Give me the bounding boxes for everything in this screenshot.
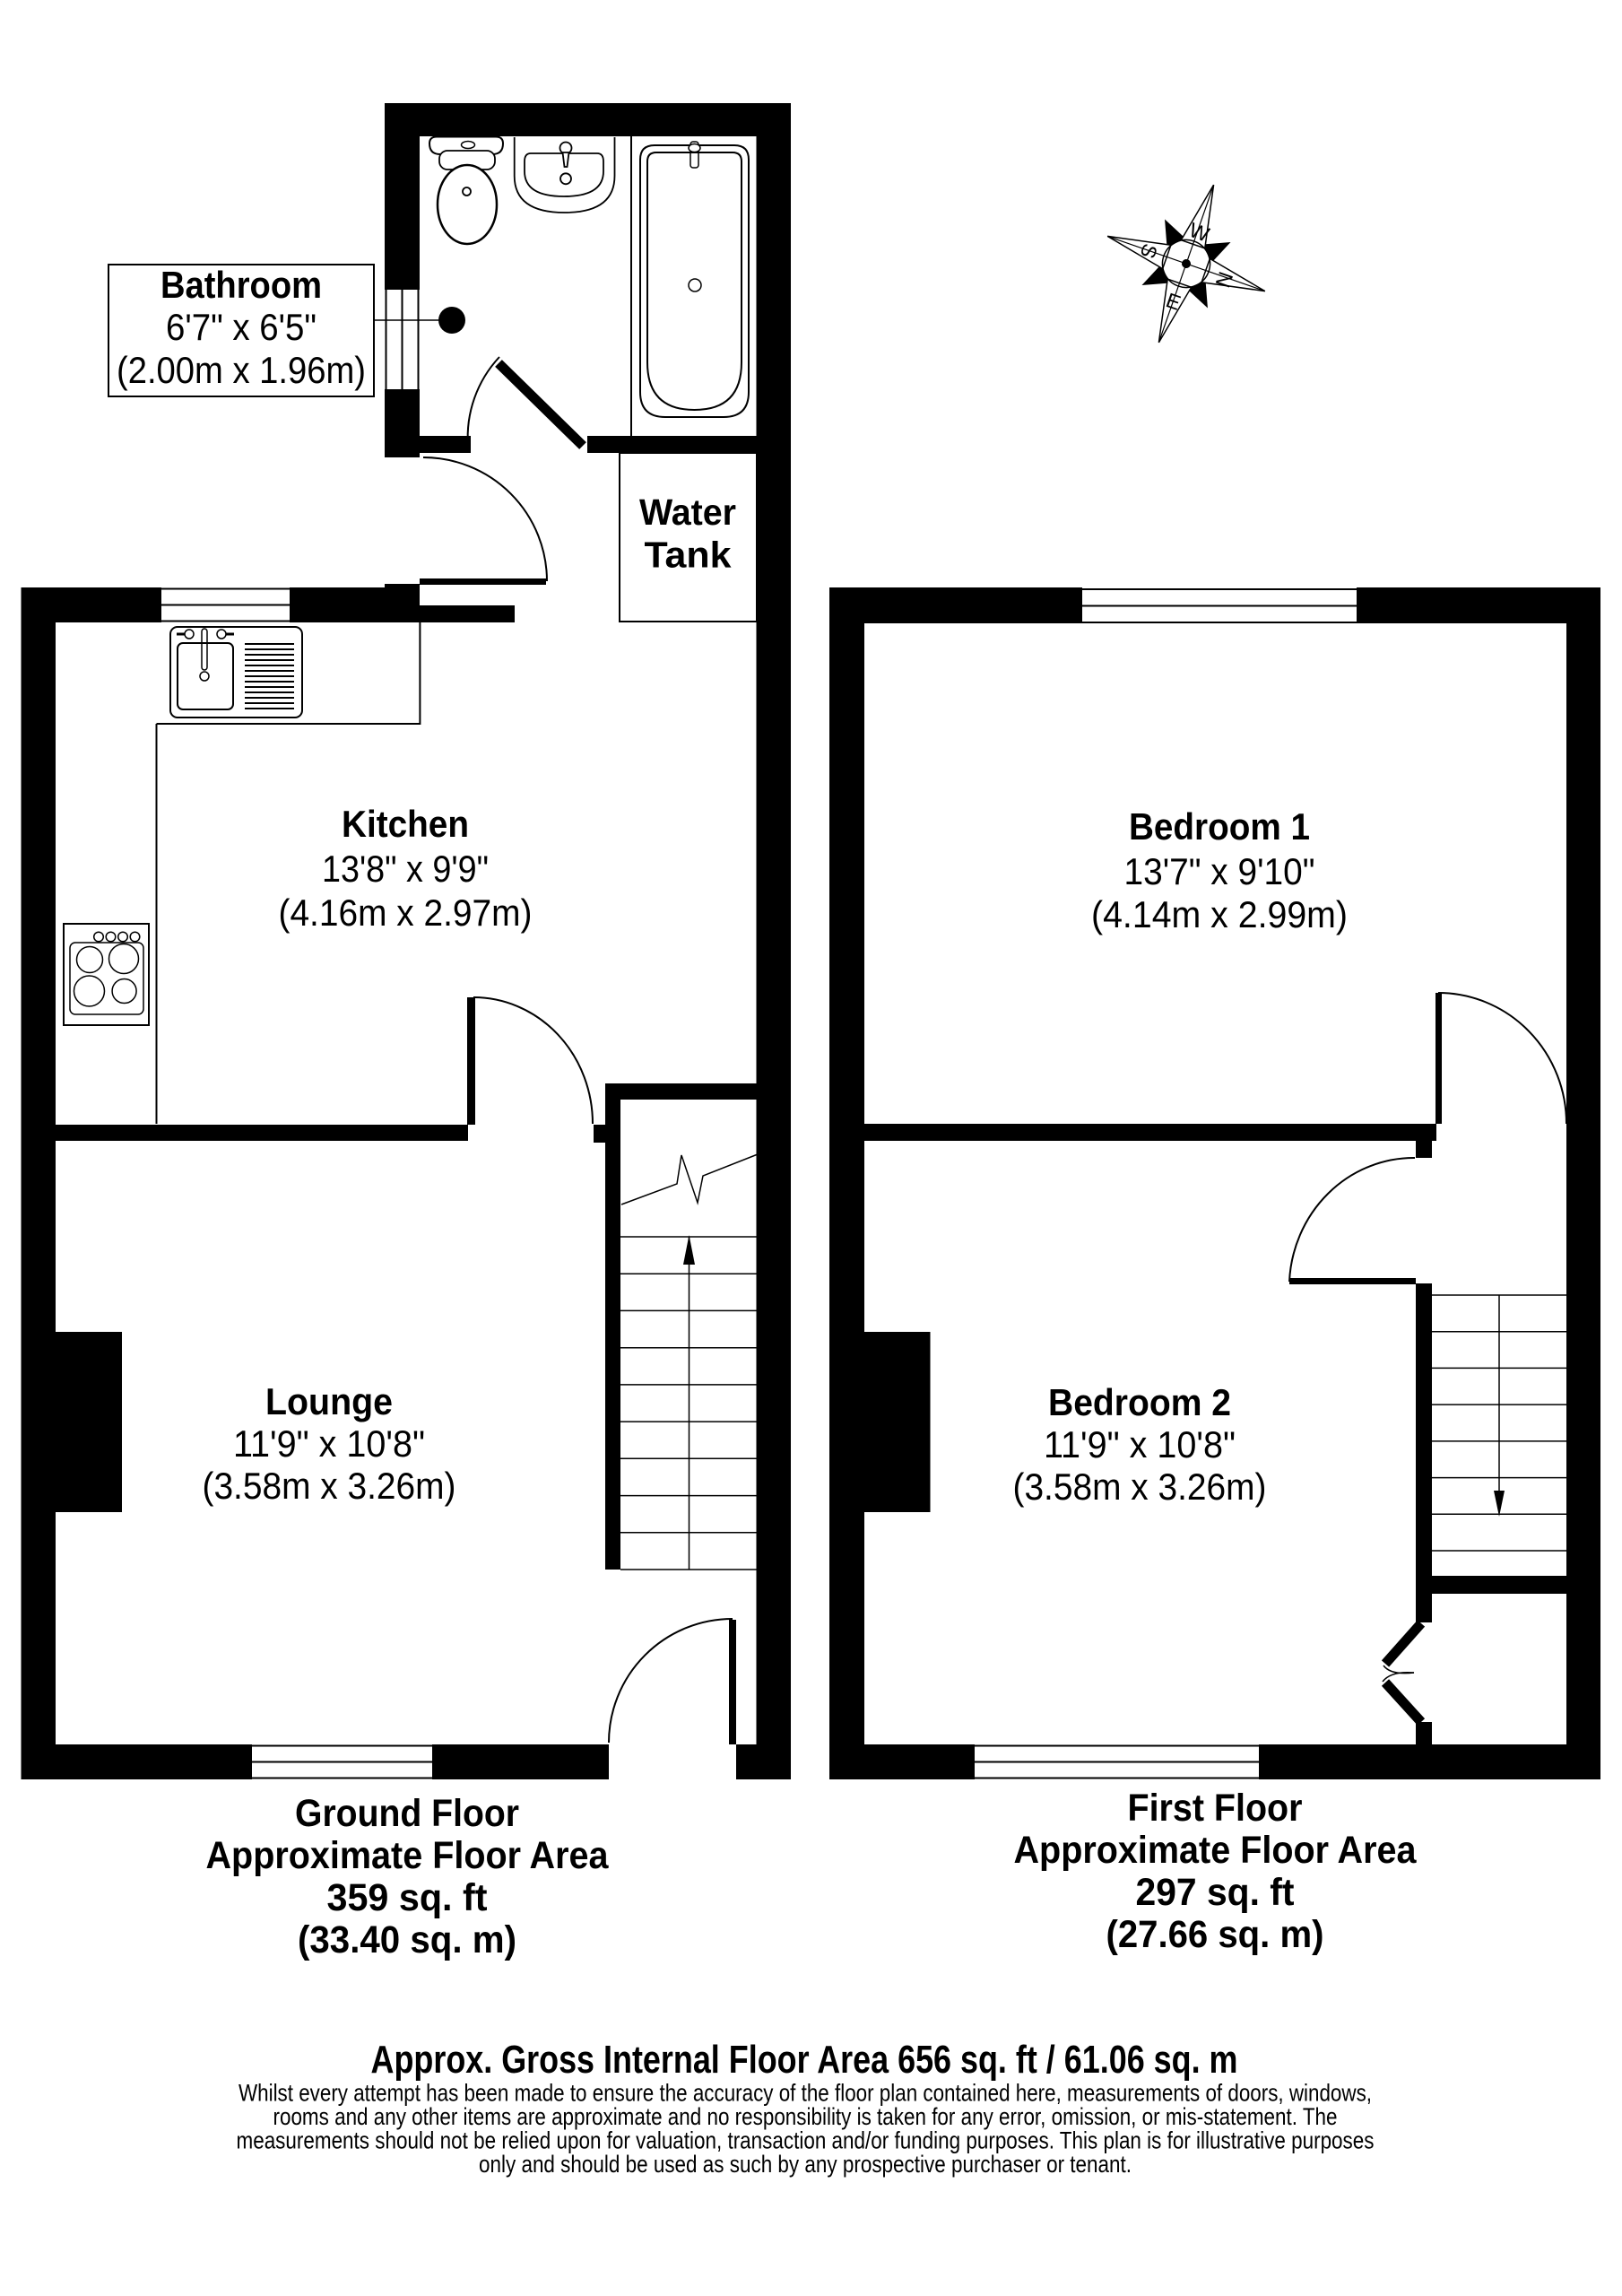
svg-text:13'8" x 9'9": 13'8" x 9'9" — [322, 848, 489, 890]
svg-text:Approximate Floor Area: Approximate Floor Area — [206, 1834, 610, 1877]
svg-text:(4.14m x 2.99m): (4.14m x 2.99m) — [1091, 893, 1348, 935]
svg-text:Bedroom 1: Bedroom 1 — [1129, 805, 1310, 848]
svg-text:(33.40 sq. m): (33.40 sq. m) — [298, 1918, 516, 1961]
svg-text:(27.66 sq. m): (27.66 sq. m) — [1106, 1913, 1324, 1956]
svg-text:297 sq. ft: 297 sq. ft — [1136, 1871, 1295, 1914]
svg-text:rooms and any other items are: rooms and any other items are approximat… — [273, 2103, 1338, 2130]
svg-text:measurements should not be rel: measurements should not be relied upon f… — [237, 2127, 1375, 2154]
svg-text:First Floor: First Floor — [1128, 1787, 1303, 1830]
svg-text:(3.58m x 3.26m): (3.58m x 3.26m) — [203, 1465, 456, 1507]
svg-text:(3.58m x 3.26m): (3.58m x 3.26m) — [1013, 1465, 1267, 1508]
svg-text:359 sq. ft: 359 sq. ft — [327, 1876, 488, 1919]
svg-text:Water: Water — [639, 491, 736, 533]
svg-text:Bathroom: Bathroom — [160, 264, 322, 306]
svg-text:(2.00m x 1.96m): (2.00m x 1.96m) — [117, 349, 366, 391]
svg-text:6'7" x 6'5": 6'7" x 6'5" — [166, 306, 317, 348]
svg-text:Ground Floor: Ground Floor — [295, 1792, 519, 1835]
svg-text:Kitchen: Kitchen — [342, 803, 469, 845]
svg-text:only and should be used as suc: only and should be used as such by any p… — [479, 2151, 1132, 2178]
svg-text:11'9" x 10'8": 11'9" x 10'8" — [1044, 1423, 1236, 1465]
svg-text:Lounge: Lounge — [265, 1380, 393, 1422]
svg-text:Approximate Floor Area: Approximate Floor Area — [1014, 1829, 1418, 1872]
svg-text:13'7" x 9'10": 13'7" x 9'10" — [1124, 850, 1315, 892]
svg-text:Approx. Gross Internal Floor A: Approx. Gross Internal Floor Area 656 sq… — [371, 2038, 1238, 2082]
svg-text:(4.16m x 2.97m): (4.16m x 2.97m) — [279, 891, 533, 934]
svg-text:Whilst every attempt has been: Whilst every attempt has been made to en… — [239, 2080, 1372, 2107]
svg-text:Tank: Tank — [645, 535, 732, 576]
svg-text:Bedroom 2: Bedroom 2 — [1048, 1381, 1231, 1423]
svg-text:11'9" x 10'8": 11'9" x 10'8" — [233, 1422, 425, 1465]
